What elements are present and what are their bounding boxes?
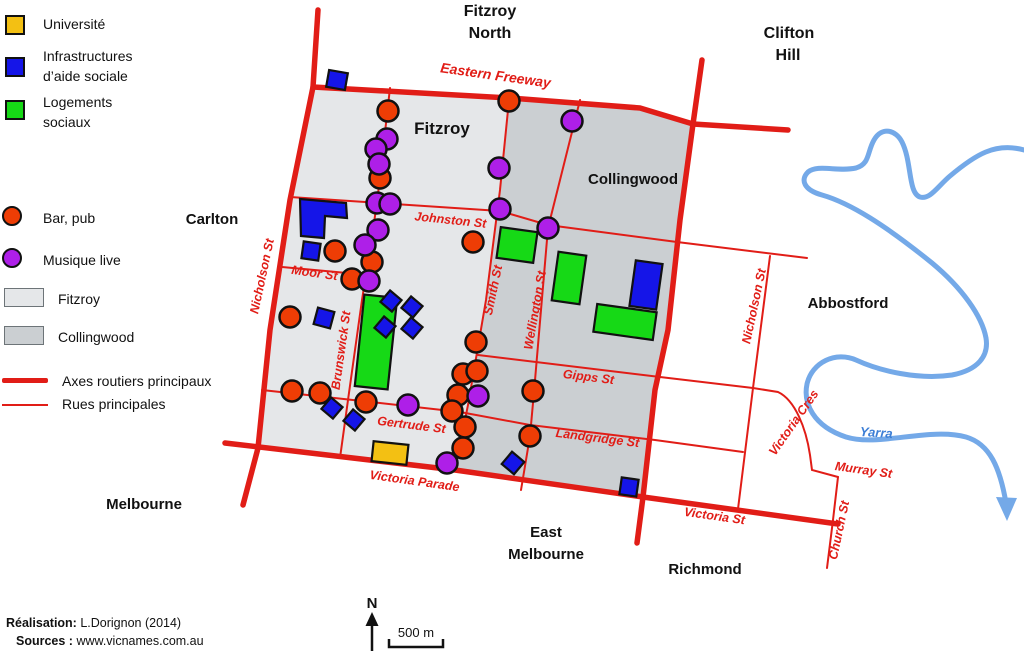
live-music-venue [489, 158, 510, 179]
social-housing-legend-line1: Logements [43, 92, 112, 112]
live-music-venue [562, 111, 583, 132]
street-label: Murray St [834, 459, 894, 481]
map-legend: Université Infrastructures d’aide social… [0, 0, 260, 420]
bar-pub-venue [280, 307, 301, 328]
bar-pub-swatch [2, 206, 22, 226]
social-aid-legend-line1: Infrastructures [43, 46, 132, 66]
area-label: Hill [776, 47, 801, 64]
social-aid-building [326, 70, 348, 90]
area-label: Melbourne [508, 546, 584, 563]
sources-value: www.vicnames.com.au [76, 634, 203, 648]
bar-pub-legend-label: Bar, pub [43, 208, 95, 228]
yarra-river [804, 131, 1024, 503]
social-housing-legend-line2: sociaux [43, 112, 90, 132]
area-label: North [469, 25, 512, 42]
live-music-venue [490, 199, 511, 220]
bar-pub-venue [523, 381, 544, 402]
collingwood-legend-label: Collingwood [58, 327, 134, 347]
area-label: Melbourne [106, 496, 182, 513]
street-label: Church St [826, 499, 852, 561]
live-music-venue [437, 453, 458, 474]
live-music-venue [468, 386, 489, 407]
area-label: Collingwood [588, 171, 678, 188]
main-axes-swatch [2, 378, 48, 383]
bar-pub-venue [520, 426, 541, 447]
university-building [372, 441, 409, 465]
credits: Réalisation: L.Dorignon (2014) Sources :… [6, 614, 204, 650]
street-victoria-cres [753, 388, 838, 477]
social-aid-building [619, 477, 638, 496]
map-page: YarraEastern FreewayNicholson StJohnston… [0, 0, 1024, 651]
social-aid-building [629, 260, 662, 309]
north-label: N [367, 595, 378, 612]
social-housing-swatch [5, 100, 25, 120]
social-aid-building [301, 241, 320, 260]
bar-pub-venue [467, 361, 488, 382]
street-label: Victoria Cres [766, 387, 821, 458]
sources-label: Sources : [16, 634, 76, 648]
scale-bar [389, 639, 443, 647]
area-label: Clifton [764, 25, 815, 42]
live-music-venue [369, 154, 390, 175]
bar-pub-venue [463, 232, 484, 253]
fitzroy-legend-label: Fitzroy [58, 289, 100, 309]
area-label: Richmond [668, 561, 741, 578]
live-music-venue [398, 395, 419, 416]
university-legend-label: Université [43, 14, 105, 34]
main-streets-swatch [2, 404, 48, 406]
area-label: East [530, 524, 562, 541]
bar-pub-venue [325, 241, 346, 262]
social-housing-building [497, 227, 538, 263]
bar-pub-venue [378, 101, 399, 122]
bar-pub-venue [455, 417, 476, 438]
collingwood-zone-swatch [4, 326, 44, 345]
live-music-venue [359, 271, 380, 292]
river-flow-arrow [996, 497, 1017, 521]
social-housing-building [552, 252, 587, 304]
area-label: Fitzroy [414, 119, 470, 138]
north-arrow-head [366, 612, 379, 626]
area-label: Fitzroy [464, 3, 517, 20]
area-label: Abbostford [808, 295, 889, 312]
realisation-label: Réalisation: [6, 616, 77, 630]
live-music-venue [538, 218, 559, 239]
scale-label: 500 m [398, 625, 434, 640]
street-label: Eastern Freeway [439, 59, 553, 91]
social-aid-legend-line2: d’aide sociale [43, 66, 128, 86]
realisation-value: L.Dorignon (2014) [77, 616, 181, 630]
bar-pub-venue [356, 392, 377, 413]
social-aid-building [314, 308, 335, 329]
bar-pub-venue [466, 332, 487, 353]
yarra-label: Yarra [859, 424, 893, 441]
social-aid-swatch [5, 57, 25, 77]
fitzroy-zone-swatch [4, 288, 44, 307]
university-swatch [5, 15, 25, 35]
bar-pub-venue [499, 91, 520, 112]
live-music-venue [355, 235, 376, 256]
live-music-legend-label: Musique live [43, 250, 121, 270]
main-streets-legend-label: Rues principales [62, 394, 166, 414]
main-axes-legend-label: Axes routiers principaux [62, 371, 211, 391]
bar-pub-venue [310, 383, 331, 404]
live-music-swatch [2, 248, 22, 268]
bar-pub-venue [282, 381, 303, 402]
live-music-venue [380, 194, 401, 215]
